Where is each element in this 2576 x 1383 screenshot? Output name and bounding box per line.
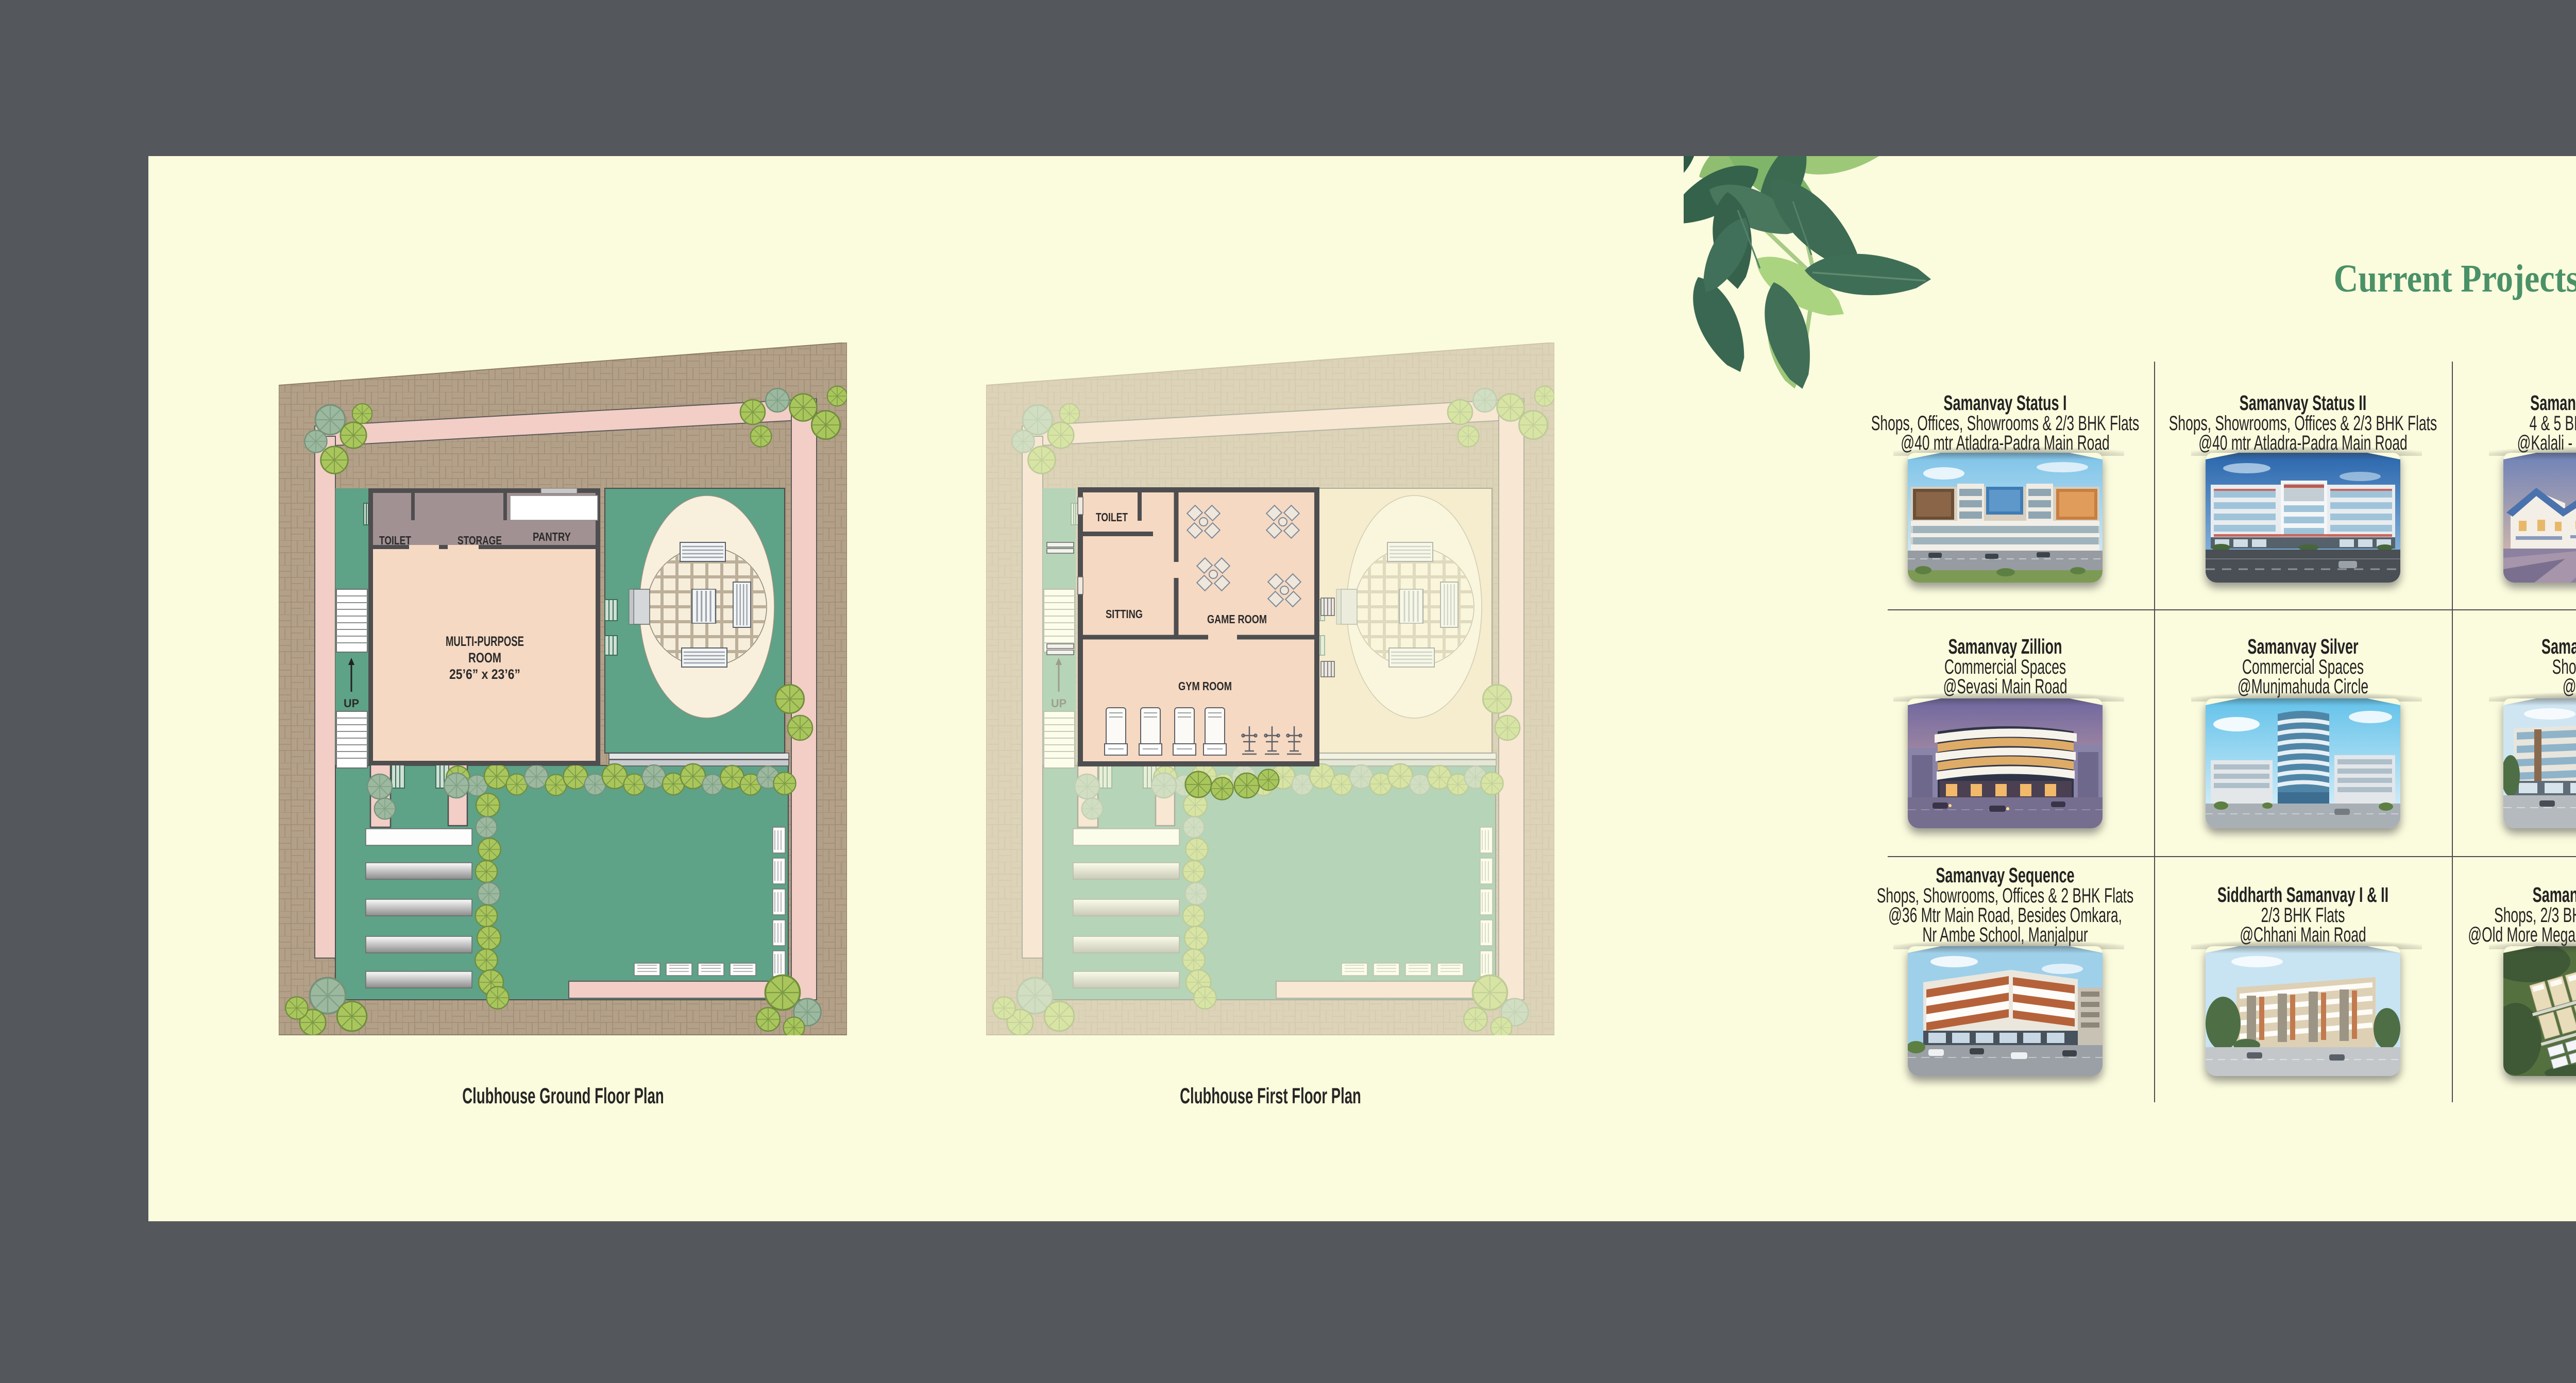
svg-text:STORAGE: STORAGE	[457, 534, 502, 547]
svg-text:25’6” x 23’6”: 25’6” x 23’6”	[449, 667, 520, 682]
svg-text:ROOM: ROOM	[468, 650, 501, 665]
svg-text:GAME ROOM: GAME ROOM	[1207, 612, 1267, 626]
svg-text:SITTING: SITTING	[1106, 607, 1143, 621]
svg-text:UP: UP	[344, 697, 359, 710]
svg-text:MULTI-PURPOSE: MULTI-PURPOSE	[446, 634, 524, 649]
svg-text:PANTRY: PANTRY	[533, 530, 571, 543]
svg-text:TOILET: TOILET	[1096, 510, 1128, 524]
svg-text:TOILET: TOILET	[379, 534, 411, 547]
svg-text:GYM ROOM: GYM ROOM	[1178, 679, 1232, 693]
